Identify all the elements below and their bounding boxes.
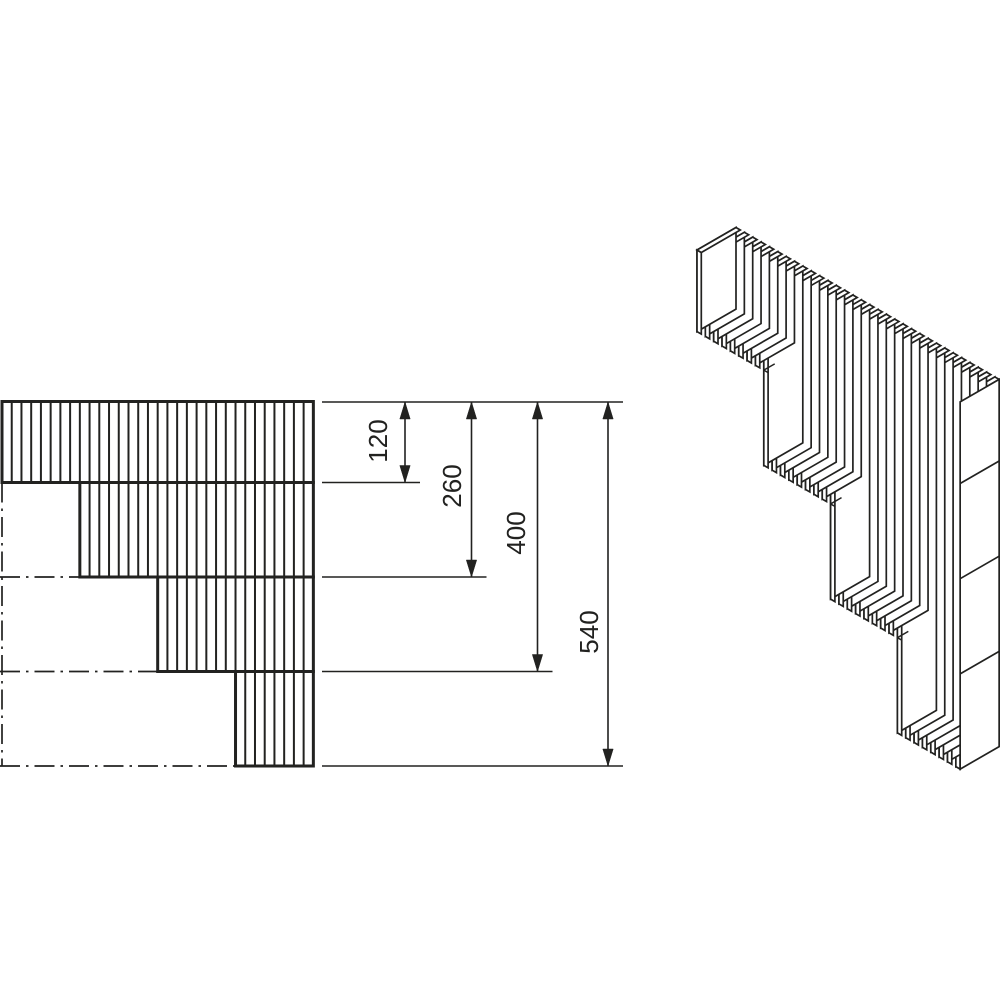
isometric-view	[697, 228, 999, 770]
dimension-120: 120	[322, 402, 420, 483]
iso-end-panel	[960, 379, 999, 769]
dimension-label-120: 120	[363, 419, 393, 462]
technical-drawing-canvas: 120260400540	[0, 0, 1000, 1000]
dimension-400: 400	[322, 402, 553, 672]
front-view-course-1	[2, 402, 313, 483]
drawing-svg: 120260400540	[0, 0, 1000, 1000]
front-view-course-3	[158, 577, 314, 672]
dimension-label-400: 400	[501, 511, 531, 554]
dimension-lines: 120260400540	[322, 402, 623, 766]
dimension-label-260: 260	[437, 464, 467, 507]
front-view-course-4	[236, 672, 314, 767]
front-view-course-2	[80, 483, 314, 578]
front-view	[0, 402, 313, 767]
dimension-label-540: 540	[574, 610, 604, 653]
